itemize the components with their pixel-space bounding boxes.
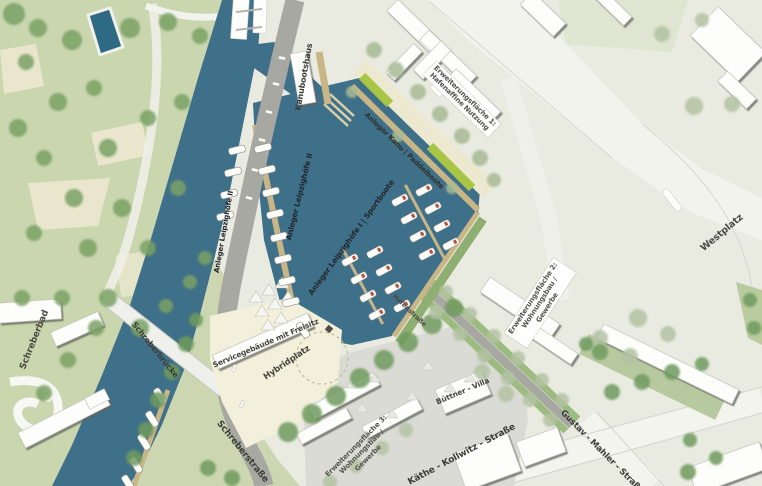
connector-street: [508, 78, 562, 300]
site-plan-map: Schreberbad Schreberbrücke Schreberstraß…: [0, 0, 762, 486]
small-kiosk: [430, 83, 445, 98]
map-canvas: [0, 0, 762, 486]
base-layer: [0, 0, 762, 486]
green-east: [736, 282, 762, 345]
